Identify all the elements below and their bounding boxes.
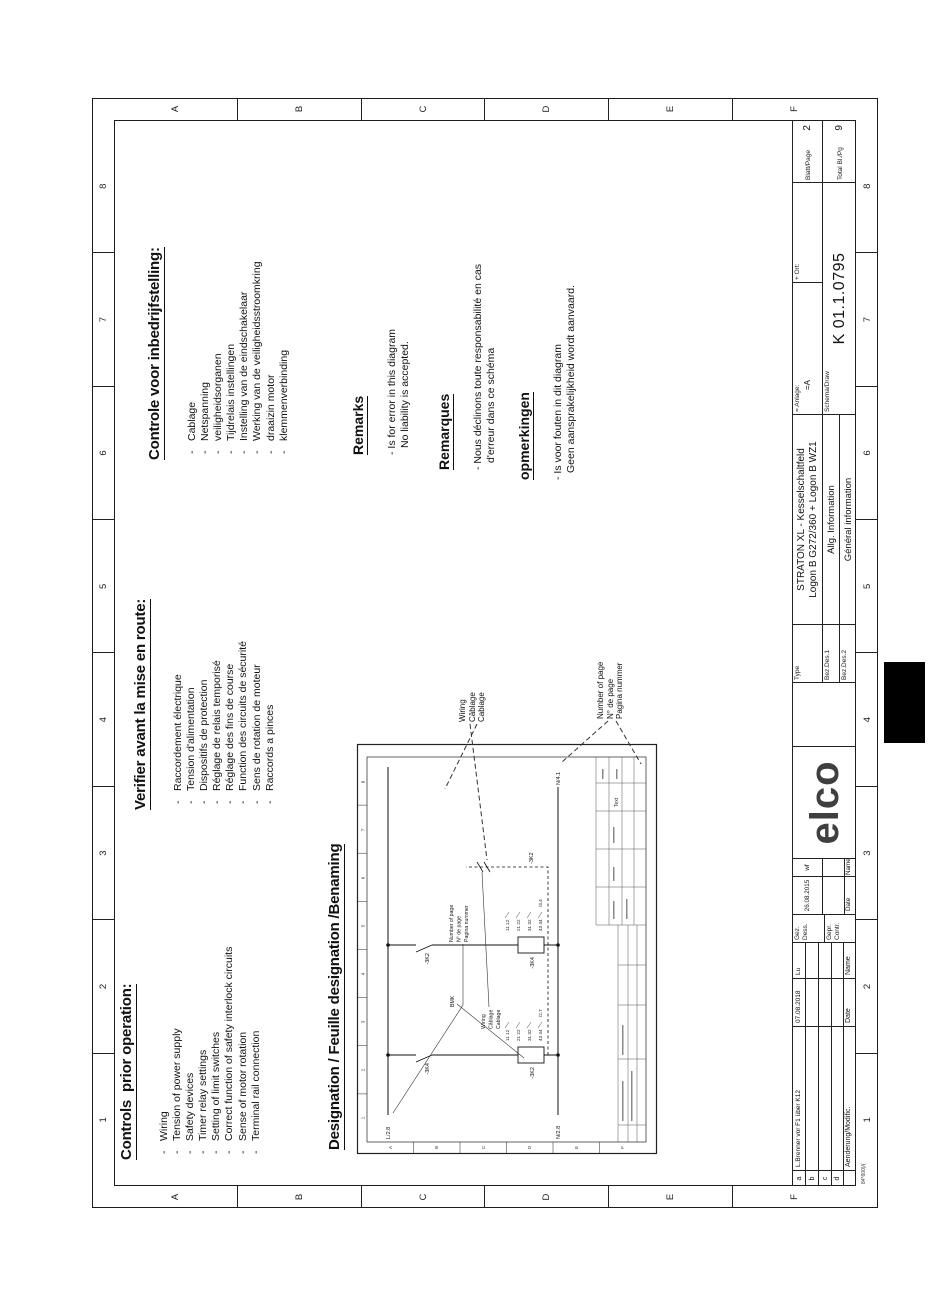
number-of-page-label: N° de page: [457, 916, 463, 942]
ruler-cell: 7: [92, 252, 114, 385]
mini-ruler-row: B: [434, 1146, 439, 1149]
bez2-label: Bez.Des.2: [840, 625, 848, 682]
checklist-item: draaizin motor: [265, 261, 278, 454]
approval-labels: Gez. Dess. Gepr. Contr.: [793, 914, 856, 942]
pin-pair: 31 32: [527, 919, 532, 931]
pin-ref: /3.4: [538, 899, 543, 907]
ruler-cell: C: [362, 98, 486, 120]
checklist-item: Réglage des fins de course: [224, 641, 237, 804]
revision-footer-name: Name: [844, 943, 856, 978]
scanned-sheet: 12345678 12345678 ABCDEF ABCDEF Controls…: [0, 0, 950, 1294]
checklist-item: Cablage: [186, 261, 199, 454]
remarks-en-lines: - Is for error in this diagramNo liabili…: [386, 329, 412, 455]
checklist-item: Tension d'alimentation: [185, 641, 198, 804]
ruler-cell: A: [114, 98, 238, 120]
total-pages-value: 9: [834, 120, 845, 131]
checklist-item: Dispositifs de protection: [198, 641, 211, 804]
mini-ruler-num: 4: [361, 972, 366, 975]
number-of-page-label: Number of page: [449, 905, 455, 942]
ruler-cell: 5: [92, 519, 114, 652]
heading-controls-nl: Controle voor inbedrijfstelling:: [146, 247, 165, 460]
remark-line: Geen aansprakelijkheid wordt aanvaard.: [565, 285, 578, 480]
callout-wiring: WiringCâblageCablage: [458, 692, 487, 722]
section-controls-fr: Verifier avant la mise en route:: [132, 599, 151, 810]
checklist-item: Correct function of safety interlock cir…: [223, 947, 236, 1154]
heading-controls-fr: Verifier avant la mise en route:: [132, 599, 151, 810]
approval-date: 26.08.2015: [793, 877, 823, 914]
revision-empty: [819, 979, 832, 1026]
contact-label-1: -3K4: [425, 1063, 431, 1075]
revision-entry-date: 07.08.2018: [793, 979, 806, 1026]
anlage-value: =A: [801, 283, 812, 414]
ruler-cell: B: [238, 98, 362, 120]
section-controls-en: Controls prior operation:: [118, 984, 137, 1160]
revision-footer-date: Date: [844, 979, 856, 1026]
ruler-cell: C: [362, 1186, 486, 1208]
remark-line: - Is voor fouten in dit diagram: [552, 285, 565, 480]
checklist-item: Timer relay settings: [197, 947, 210, 1154]
elco-logo: elco: [805, 760, 845, 844]
ruler-cell: D: [485, 1186, 609, 1208]
section-remarks-en: Remarks: [350, 396, 368, 455]
revision-marker-footer: [844, 1171, 856, 1186]
ruler-cell: F: [733, 1186, 856, 1208]
ruler-cell: 5: [856, 519, 878, 652]
revision-empty: [806, 979, 819, 1026]
type-label: Type: [793, 625, 801, 682]
ruler-bottom-columns: 12345678: [856, 120, 878, 1186]
revision-marker: c: [819, 1171, 832, 1186]
remark-line: No liability is accepted.: [399, 329, 412, 455]
heading-remarks-en: Remarks: [350, 396, 368, 455]
pin-pair: 11 12: [505, 919, 510, 931]
section-remarks-fr: Remarques: [436, 394, 454, 470]
approval-date-label: Date: [845, 877, 856, 914]
pin-pair: 31 32: [527, 1029, 532, 1041]
ruler-cell: 1: [92, 1053, 114, 1186]
ruler-cell: 1: [856, 1053, 878, 1186]
mini-titleblock-text: Text: [614, 797, 620, 807]
checklist-item: Terminal rail connection: [250, 947, 263, 1154]
rail-n-right-label: N/4.1: [556, 772, 562, 785]
revision-description-col: L.Brenner vor F1 über K12 Aenderung/Modi…: [793, 1026, 856, 1170]
remarks-nl-lines: - Is voor fouten in dit diagramGeen aans…: [552, 285, 578, 480]
bez1-label: Bez.Des.1: [823, 625, 831, 682]
heading-controls-en: Controls prior operation:: [118, 984, 137, 1160]
ruler-cell: A: [114, 1186, 238, 1208]
ruler-cell: 4: [92, 653, 114, 786]
ruler-cell: 4: [856, 653, 878, 786]
location-block: = Anlage: =A + Ort: Schema/Draw K 01.1.0…: [793, 182, 856, 414]
junction-dot: [556, 1053, 560, 1057]
checklist-item: Netspanning: [199, 261, 212, 454]
heading-remarks-fr: Remarques: [436, 394, 454, 470]
revision-empty: [806, 943, 819, 978]
checklist-item: Wiring: [158, 947, 171, 1154]
checklist-item: Safety devices: [184, 947, 197, 1154]
mini-ruler-row: E: [574, 1146, 579, 1149]
mini-ruler-num: 8: [361, 780, 366, 783]
ruler-top-columns: 12345678: [92, 120, 114, 1186]
wiring-label: Câblage: [489, 1010, 495, 1029]
revision-empty: [832, 1027, 844, 1170]
contact-label-2: -3K2: [425, 953, 431, 965]
drawn-label: Dess.: [801, 915, 809, 942]
ruler-cell: 6: [92, 386, 114, 519]
pages-block: Blatt/Page 2 Total Bl./Pg 9: [793, 120, 856, 182]
revision-entry-description: L.Brenner vor F1 über K12: [793, 1027, 806, 1170]
list-controls-fr: Raccordement électriqueTension d'aliment…: [172, 641, 277, 804]
wiring-label: Cablage: [496, 1010, 502, 1029]
checklist-item: Sense of motor rotation: [237, 947, 250, 1154]
approval-date-col: 26.08.2015 Date: [793, 876, 856, 914]
heading-remarks-nl: opmerkingen: [516, 392, 534, 480]
mini-ruler-row: F: [620, 1146, 625, 1149]
mini-ruler-num: 1: [361, 1116, 366, 1119]
revision-date-col: 07.08.2018 Date: [793, 978, 856, 1026]
callout-line: Câblage: [468, 692, 478, 722]
wiring-label: Wiring: [481, 1014, 487, 1029]
mini-ruler-row: C: [481, 1145, 486, 1149]
schema-label: Schema/Draw: [823, 183, 831, 414]
section-controls-nl: Controle voor inbedrijfstelling:: [146, 247, 165, 460]
coil-label-1: -3K2: [530, 1067, 536, 1079]
revision-empty: [819, 943, 832, 978]
revision-footer-description: Aenderung/Modific.: [844, 1027, 856, 1170]
approval-empty: [823, 859, 845, 876]
remark-line: - Is for error in this diagram: [386, 329, 399, 455]
checklist-item: veiligheidsorganen: [212, 261, 225, 454]
wiring-leader: [482, 872, 489, 1007]
mini-ruler-num: 6: [361, 876, 366, 879]
mini-ruler-num: 2: [361, 1068, 366, 1071]
checklist-item: Setting of limit switches: [210, 947, 223, 1154]
bez1-value: Allg. Information: [823, 415, 840, 624]
checklist-item: Raccordement électrique: [172, 641, 185, 804]
binding-mark: [884, 662, 925, 743]
type-line1: STRATON XL - Kesselschaltfeld: [796, 448, 808, 591]
remark-line: - Nous déclinons toute responsabilité en…: [472, 264, 485, 470]
type-content: STRATON XL - Kesselschaltfeld Logon B G2…: [793, 414, 856, 624]
ruler-right-rows: ABCDEF: [114, 98, 856, 120]
mini-ruler-num: 3: [361, 1020, 366, 1023]
callout-line: Cablage: [477, 692, 487, 722]
pin-pair: 11 12: [505, 1029, 510, 1041]
revision-empty: [806, 1027, 819, 1170]
checklist-item: Instelling van de eindschakelaar: [238, 261, 251, 454]
pin-pair: 21 22: [516, 1029, 521, 1041]
branch-1: [388, 1047, 558, 1063]
ort-label: + Ort:: [793, 183, 801, 282]
revision-marker: d: [832, 1171, 844, 1186]
checklist-item: Réglage de relais temporisé: [211, 641, 224, 804]
callout-line: Number of page: [596, 662, 606, 719]
ruler-cell: B: [238, 1186, 362, 1208]
ruler-cell: D: [485, 98, 609, 120]
pin-ref: /2.7: [538, 1009, 543, 1017]
remark-line: d'erreur dans ce schéma: [485, 264, 498, 470]
ruler-cell: E: [609, 1186, 733, 1208]
ruler-cell: 8: [856, 120, 878, 252]
contact-table-1: 11 12 21 22 31 32 43 44 /2.7: [505, 1009, 543, 1041]
revision-marker: a: [793, 1171, 806, 1186]
contact-table-2: 11 12 21 22 31 32 43 44 /3.4: [505, 899, 543, 931]
coil-label-2: -3K4: [530, 957, 536, 969]
revision-markers: a b c d: [793, 1170, 856, 1186]
mini-ruler-row: A: [388, 1145, 393, 1149]
junction-dot: [386, 1053, 390, 1057]
section-remarks-nl: opmerkingen: [516, 392, 534, 480]
anlage-label: = Anlage:: [793, 283, 801, 414]
blatt-value: 2: [802, 120, 813, 131]
approval-name-col: wf Name: [793, 858, 856, 876]
revision-empty: [832, 943, 844, 978]
checklist-item: Tijdrelais instellingen: [225, 261, 238, 454]
ruler-cell: 7: [856, 252, 878, 385]
bmk-label: BMK: [450, 995, 456, 1007]
schema-number: K 01.1.0795: [831, 183, 849, 414]
checked-label: Gepr.: [825, 915, 833, 942]
mini-titleblock: [596, 757, 646, 1142]
rail-n-left-label: N/2.8: [556, 1126, 562, 1139]
revision-entry-name: Lu: [793, 943, 806, 978]
mini-ruler-row: D: [527, 1145, 532, 1149]
approval-empty: [823, 877, 845, 914]
total-pages-label: Total Bl./Pg: [836, 131, 844, 182]
revision-name-col: Lu Name: [793, 942, 856, 978]
wire-ref-label: -3K2: [529, 852, 535, 864]
checklist-item: Werking van de veiligheidsstroomkring: [251, 261, 264, 454]
revision-marker: b: [806, 1171, 819, 1186]
mini-ruler-num: 5: [361, 924, 366, 927]
approval-name-label: Name: [845, 859, 856, 876]
mini-ruler-num: 7: [361, 828, 366, 831]
branch-2: [388, 937, 558, 953]
drawn-label: Gez.: [793, 915, 801, 942]
ruler-left-rows: ABCDEF: [114, 1186, 856, 1208]
heading-designation: Designation / Feuille designation /Benam…: [326, 844, 345, 1150]
type-labels: Type Bez.Des.1 Bez.Des.2: [793, 624, 856, 682]
logo-cell: elco: [793, 746, 856, 858]
callout-line: N° de page: [606, 662, 616, 719]
bez2-value: Général information: [840, 415, 856, 624]
checklist-item: Raccords a pinces: [264, 641, 277, 804]
list-controls-en: WiringTension of power supplySafety devi…: [158, 947, 263, 1154]
checklist-item: Function des circuits de sécurité: [237, 641, 250, 804]
type-line2: Logon B G272/360 + Logon B WZ1: [808, 441, 820, 598]
rail-l-label: L/2.8: [386, 1127, 392, 1139]
ruler-cell: 6: [856, 386, 878, 519]
titleblock: a b c d L.Brenner vor F1 über K12 Aender…: [792, 120, 856, 1186]
ruler-cell: 8: [92, 120, 114, 252]
callout-line: Pagina nummer: [615, 662, 625, 719]
junction-dot: [386, 943, 390, 947]
ruler-cell: E: [609, 98, 733, 120]
checklist-item: Tension of power supply: [171, 947, 184, 1154]
section-designation: Designation / Feuille designation /Benam…: [326, 844, 345, 1150]
callout-line: Wiring: [458, 692, 468, 722]
ruler-cell: 2: [92, 919, 114, 1052]
ruler-cell: 2: [856, 919, 878, 1052]
pin-pair: 43 44: [538, 1029, 543, 1041]
revision-empty: [819, 1027, 832, 1170]
remarks-fr-lines: - Nous déclinons toute responsabilité en…: [472, 264, 498, 470]
revision-empty: [832, 979, 844, 1026]
checklist-item: Sens de rotation de moteur: [251, 641, 264, 804]
ruler-cell: F: [733, 98, 856, 120]
junction-dot: [556, 943, 560, 947]
blatt-label: Blatt/Page: [804, 131, 812, 182]
pin-pair: 43 44: [538, 919, 543, 931]
number-of-page-leader: [393, 944, 463, 1113]
number-of-page-label: Pagina nummer: [464, 905, 470, 942]
checklist-item: klemmenverbinding: [278, 261, 291, 454]
pin-pair: 21 22: [516, 919, 521, 931]
list-controls-nl: CablageNetspanningveiligheidsorganenTijd…: [186, 261, 291, 454]
callout-number-of-page: Number of pageN° de pagePagina nummer: [596, 662, 625, 719]
ruler-cell: 3: [856, 786, 878, 919]
ruler-cell: 3: [92, 786, 114, 919]
spare-cell: [793, 682, 856, 746]
form-number: 84*600)/(: [861, 1163, 867, 1184]
checked-label: Contr.: [833, 915, 841, 942]
drawing-canvas: 12345678 12345678 ABCDEF ABCDEF Controls…: [0, 0, 950, 1294]
approval-name: wf: [793, 859, 823, 876]
example-schematic: 1 2 3 4 5 6 7 8 A B C D E F L/2.8 N/2.8 …: [356, 743, 658, 1155]
